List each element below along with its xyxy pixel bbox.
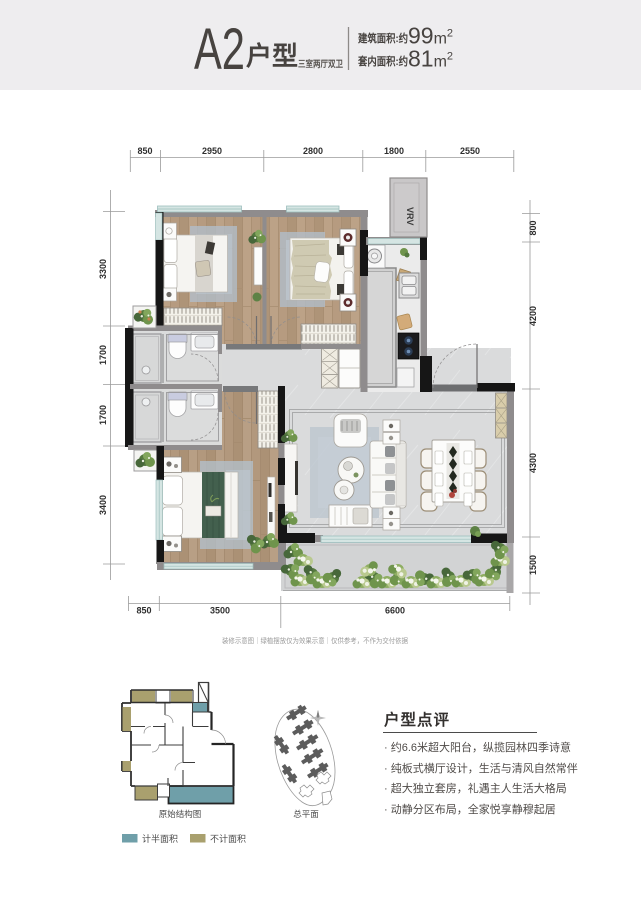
svg-text:· 纯板式横厅设计，生活与清风自然常伴: · 纯板式横厅设计，生活与清风自然常伴: [384, 761, 578, 775]
svg-text:总平面: 总平面: [293, 809, 319, 819]
svg-text:850: 850: [137, 146, 152, 156]
svg-text:建筑面积:约: 建筑面积:约: [358, 31, 408, 45]
svg-text:2950: 2950: [202, 146, 222, 156]
svg-text:· 约6.6米超大阳台，纵揽园林四季诗意: · 约6.6米超大阳台，纵揽园林四季诗意: [384, 740, 571, 754]
svg-text:800: 800: [528, 220, 538, 235]
svg-text:4200: 4200: [528, 306, 538, 326]
svg-text:VRV: VRV: [405, 207, 415, 225]
svg-text:不计面积: 不计面积: [210, 833, 246, 844]
svg-text:A2: A2: [194, 17, 245, 82]
svg-text:· 超大独立套房，礼遇主人生活大格局: · 超大独立套房，礼遇主人生活大格局: [384, 781, 567, 795]
svg-text:2550: 2550: [460, 146, 480, 156]
svg-text:计半面积: 计半面积: [142, 833, 178, 844]
svg-text:户型点评: 户型点评: [384, 710, 450, 729]
svg-text:装修示意图｜绿植摆放仅为效果示意｜仅供参考，不作为交付依据: 装修示意图｜绿植摆放仅为效果示意｜仅供参考，不作为交付依据: [222, 636, 408, 645]
svg-text:3400: 3400: [98, 495, 108, 515]
svg-text:原始结构图: 原始结构图: [159, 809, 202, 819]
svg-text:1700: 1700: [98, 405, 108, 425]
svg-text:套内面积:约: 套内面积:约: [358, 54, 408, 68]
svg-text:· 动静分区布局，全家悦享静穆起居: · 动静分区布局，全家悦享静穆起居: [384, 802, 556, 816]
svg-text:1500: 1500: [528, 555, 538, 575]
svg-text:1800: 1800: [384, 146, 404, 156]
svg-text:1700: 1700: [98, 345, 108, 365]
svg-text:三室两厅双卫: 三室两厅双卫: [298, 58, 343, 69]
svg-text:6600: 6600: [385, 606, 405, 616]
svg-text:4300: 4300: [528, 453, 538, 473]
svg-text:3300: 3300: [98, 259, 108, 279]
svg-text:3500: 3500: [210, 606, 230, 616]
svg-text:850: 850: [136, 606, 151, 616]
svg-text:户型: 户型: [246, 41, 298, 71]
svg-text:2800: 2800: [303, 146, 323, 156]
